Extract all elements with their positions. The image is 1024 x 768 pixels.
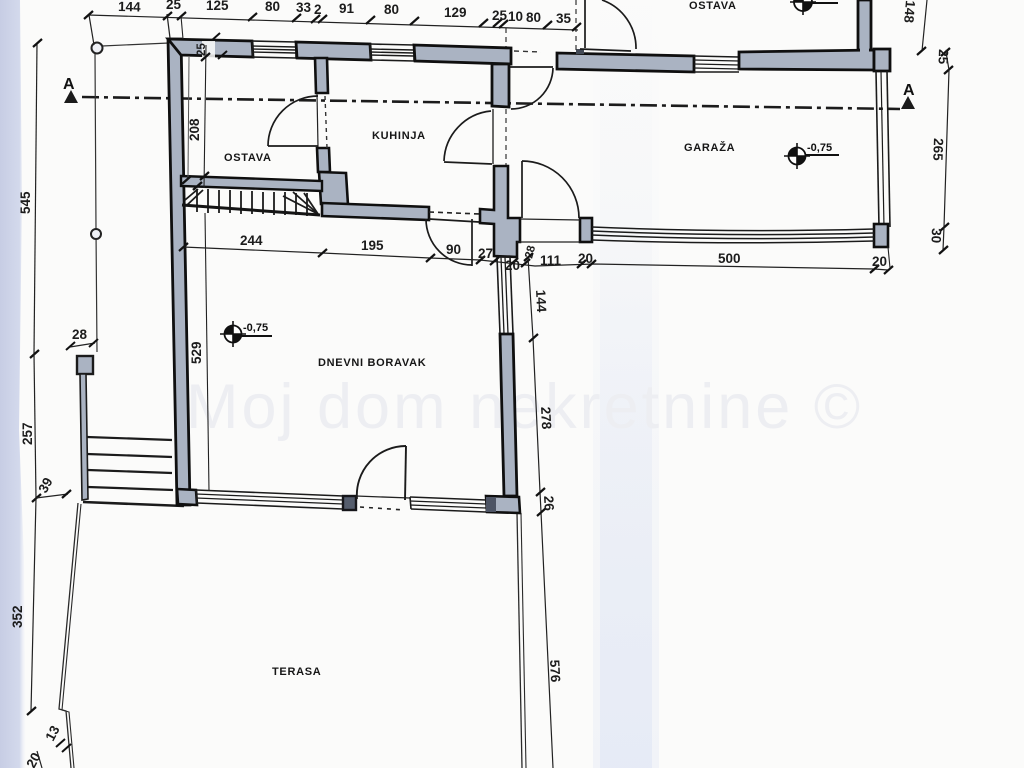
svg-text:529: 529 xyxy=(189,341,204,364)
svg-text:DNEVNI BORAVAK: DNEVNI BORAVAK xyxy=(318,357,426,369)
svg-text:A: A xyxy=(63,76,75,93)
svg-text:2: 2 xyxy=(314,2,322,17)
svg-text:111: 111 xyxy=(540,253,562,268)
svg-text:KUHINJA: KUHINJA xyxy=(372,130,426,142)
svg-text:265: 265 xyxy=(930,138,946,162)
svg-text:28: 28 xyxy=(72,327,88,342)
svg-text:125: 125 xyxy=(206,0,229,13)
svg-text:148: 148 xyxy=(901,0,918,24)
svg-text:208: 208 xyxy=(187,118,202,141)
svg-text:25: 25 xyxy=(166,0,182,12)
svg-text:576: 576 xyxy=(547,659,563,683)
svg-text:35: 35 xyxy=(556,11,572,26)
svg-text:91: 91 xyxy=(339,1,355,16)
svg-text:26: 26 xyxy=(541,495,557,511)
svg-text:80: 80 xyxy=(384,2,399,17)
svg-text:GARAŽA: GARAŽA xyxy=(684,141,735,154)
svg-text:129: 129 xyxy=(444,5,467,20)
svg-text:20: 20 xyxy=(872,254,887,269)
svg-text:500: 500 xyxy=(718,251,741,266)
svg-text:195: 195 xyxy=(361,238,384,253)
svg-text:80: 80 xyxy=(265,0,280,14)
svg-text:25: 25 xyxy=(935,49,951,65)
svg-text:Moj dom nekretnine ©: Moj dom nekretnine © xyxy=(186,372,863,442)
svg-text:278: 278 xyxy=(538,406,554,430)
svg-text:80: 80 xyxy=(526,10,541,25)
svg-text:545: 545 xyxy=(18,191,33,214)
svg-text:30: 30 xyxy=(928,228,944,244)
svg-text:A: A xyxy=(903,82,915,99)
svg-text:27: 27 xyxy=(478,246,493,261)
svg-text:144: 144 xyxy=(118,0,141,15)
svg-text:244: 244 xyxy=(240,233,263,248)
svg-text:90: 90 xyxy=(446,242,461,257)
svg-text:10: 10 xyxy=(508,9,523,24)
svg-text:-0,75: -0,75 xyxy=(243,322,268,334)
svg-text:20: 20 xyxy=(505,258,520,273)
svg-text:257: 257 xyxy=(20,422,35,445)
svg-text:144: 144 xyxy=(533,289,549,313)
svg-text:OSTAVA: OSTAVA xyxy=(224,152,272,164)
svg-text:352: 352 xyxy=(10,605,25,628)
svg-text:25: 25 xyxy=(492,8,508,23)
svg-text:33: 33 xyxy=(296,0,312,15)
svg-text:OSTAVA: OSTAVA xyxy=(689,0,737,12)
svg-text:20: 20 xyxy=(578,251,593,266)
svg-text:TERASA: TERASA xyxy=(272,666,321,678)
svg-text:-0,75: -0,75 xyxy=(807,142,832,154)
